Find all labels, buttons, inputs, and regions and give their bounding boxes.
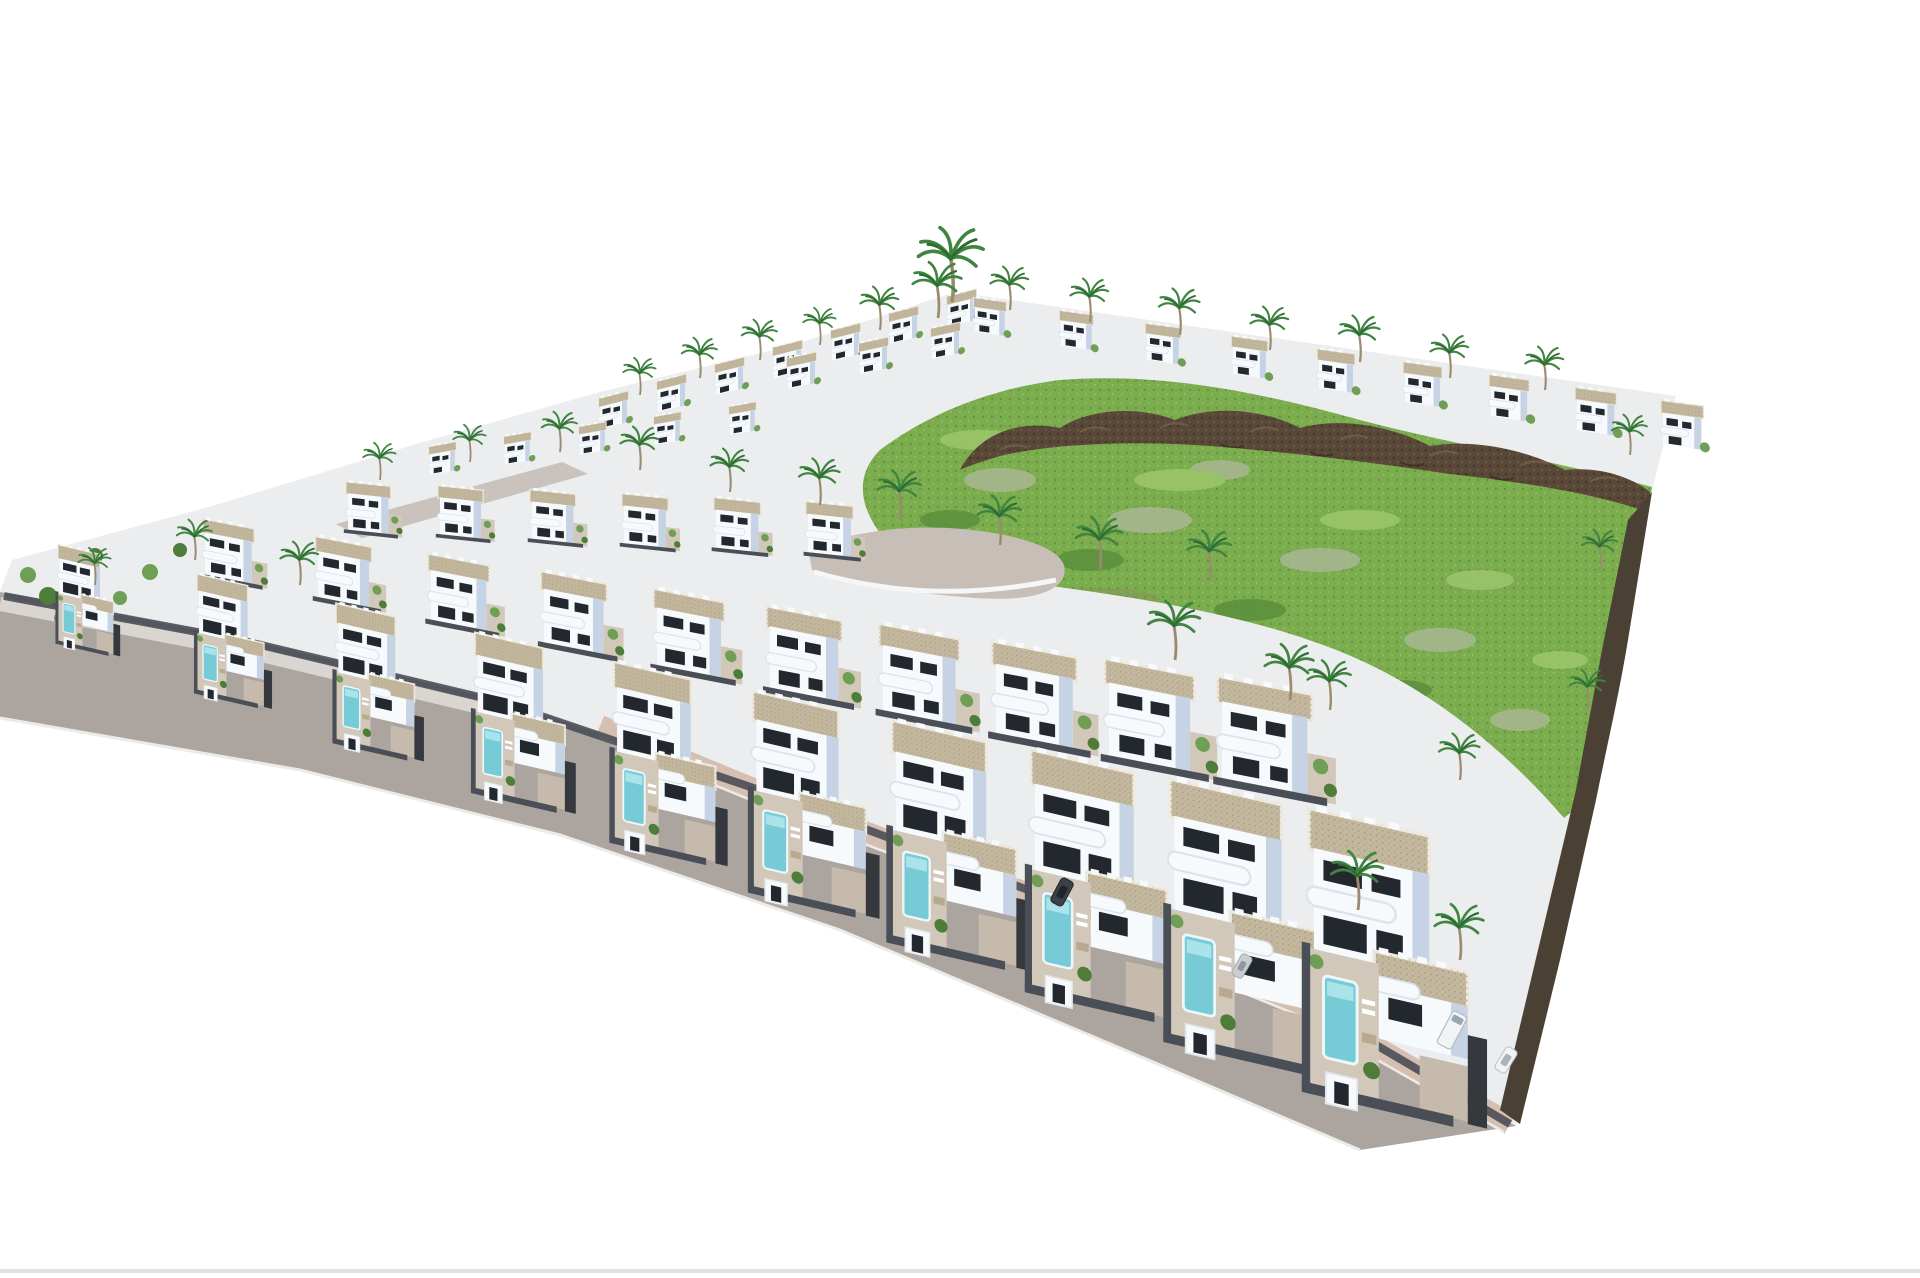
bottom-edge-line [0, 1269, 1920, 1273]
render-canvas [0, 0, 1920, 1278]
aerial-3d-render [0, 0, 1920, 1278]
